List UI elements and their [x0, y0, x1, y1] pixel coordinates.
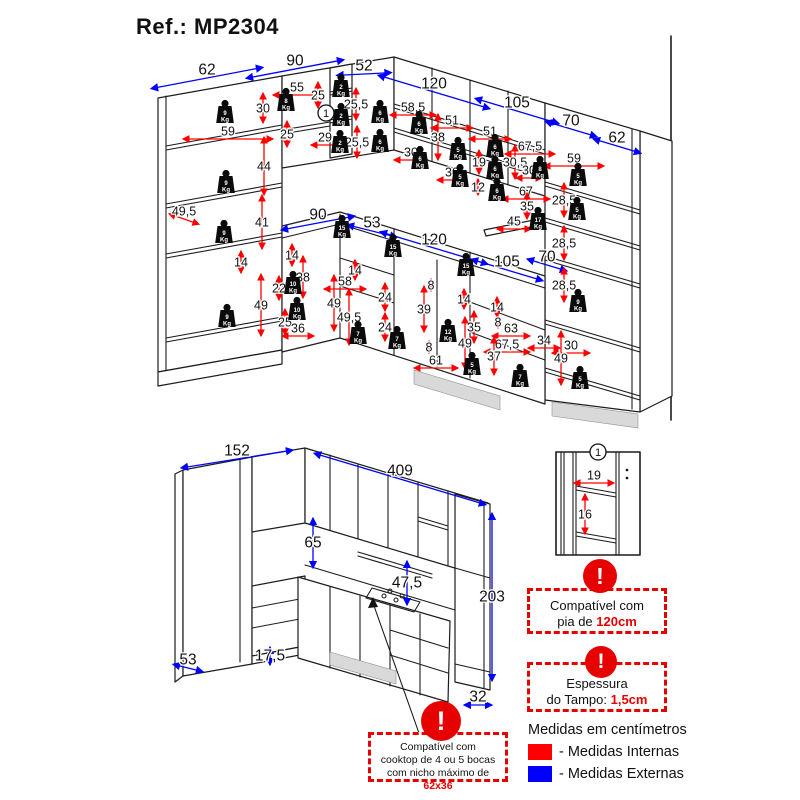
dimension-label: 49: [554, 352, 568, 366]
svg-text:Kg: Kg: [389, 252, 397, 258]
dimension-label: 90: [309, 207, 327, 224]
dimension-label: 67,5: [518, 140, 542, 154]
callout-marker: 1: [590, 444, 606, 460]
dimension-label: 25: [311, 89, 325, 103]
svg-text:Kg: Kg: [573, 215, 581, 221]
legend-heading: Medidas em centímetros: [528, 722, 687, 738]
dimension-label: 105: [504, 95, 530, 112]
dimension-label: 67: [519, 185, 533, 199]
dimension-label: 30: [256, 102, 270, 116]
svg-text:Kg: Kg: [338, 233, 346, 239]
warning-icon: !: [585, 646, 617, 678]
external-measures-swatch: [528, 766, 552, 782]
svg-text:Kg: Kg: [393, 344, 401, 350]
detail-callout-box: [556, 452, 640, 555]
dimension-label: 53: [363, 215, 380, 232]
dimension-label: 24: [378, 321, 392, 335]
svg-text:15: 15: [339, 226, 346, 232]
warning-icon: !: [421, 701, 461, 741]
svg-text:15: 15: [463, 264, 470, 270]
dimension-label: 19: [587, 469, 601, 483]
dimension-label: 37: [487, 350, 501, 364]
svg-text:Kg: Kg: [534, 225, 542, 231]
dimension-label: 19: [472, 156, 486, 170]
svg-text:Kg: Kg: [293, 315, 301, 321]
dimension-label: 62: [198, 62, 215, 79]
dimension-label: 39: [417, 303, 431, 317]
svg-text:Kg: Kg: [462, 271, 470, 277]
dimension-label: 12: [471, 181, 485, 195]
svg-text:10: 10: [290, 282, 297, 288]
dimension-label: 28,5: [552, 237, 576, 251]
callout-marker: 1: [318, 105, 334, 121]
dimension-label: 49: [327, 297, 341, 311]
legend-label-external: - Medidas Externas: [559, 766, 684, 782]
note-line: pia de 120cm: [530, 614, 664, 630]
top-exploded-view-linework: [158, 36, 672, 428]
dimension-label: 32: [469, 689, 486, 706]
note-line: Compatível com: [530, 598, 664, 614]
dimension-label: 36: [291, 322, 305, 336]
product-dimension-diagram: 629052120105706290531201057049,559304441…: [0, 0, 800, 800]
dimension-label: 38: [431, 131, 445, 145]
dimension-label: 63: [504, 322, 518, 336]
dimension-label: 152: [224, 443, 250, 460]
dimension-label: 65: [304, 535, 321, 552]
dimension-label: 47,5: [392, 575, 422, 592]
dimension-label: 16: [578, 508, 592, 522]
svg-text:Kg: Kg: [376, 118, 384, 124]
svg-text:15: 15: [390, 245, 397, 251]
svg-text:12: 12: [445, 330, 452, 336]
dimension-label: 8: [428, 279, 435, 293]
svg-text:Kg: Kg: [222, 188, 230, 194]
svg-text:Kg: Kg: [337, 121, 345, 127]
dimension-label: 409: [387, 463, 413, 480]
highlight-value: 120cm: [596, 614, 636, 629]
svg-text:Kg: Kg: [223, 322, 231, 328]
dimension-label: 61: [429, 354, 443, 368]
dimension-label: 120: [421, 76, 447, 93]
note-cooktop-compatibility: ! Compatível com cooktop de 4 ou 5 bocas…: [368, 732, 508, 782]
dimension-label: 14: [490, 301, 504, 315]
svg-text:Kg: Kg: [289, 289, 297, 295]
dimension-label: 90: [286, 53, 304, 70]
svg-text:Kg: Kg: [576, 384, 584, 390]
internal-measures-swatch: [528, 744, 552, 760]
dimension-label: 35: [520, 200, 534, 214]
note-line: cooktop de 4 ou 5 bocas: [371, 754, 505, 767]
legend-row-internal: - Medidas Internas: [528, 744, 687, 760]
dimension-label: 49: [458, 337, 472, 351]
svg-text:Kg: Kg: [220, 238, 228, 244]
svg-text:Kg: Kg: [516, 382, 524, 388]
dimension-label: 30: [564, 339, 578, 353]
highlight-value: 1,5cm: [611, 692, 648, 707]
svg-text:Kg: Kg: [456, 182, 464, 188]
dimension-label: 62: [608, 130, 625, 147]
dimension-label: 28,5: [552, 279, 576, 293]
svg-text:Kg: Kg: [536, 174, 544, 180]
dimension-label: 8: [495, 316, 502, 330]
dimension-label: 25,5: [345, 136, 369, 150]
svg-text:Kg: Kg: [336, 148, 344, 154]
dimension-label: 25: [280, 128, 294, 142]
svg-text:Kg: Kg: [574, 307, 582, 313]
svg-text:Kg: Kg: [337, 92, 345, 98]
dimension-label: 70: [538, 249, 556, 266]
dimension-label: 14: [234, 256, 248, 270]
diagram-canvas: 629052120105706290531201057049,559304441…: [0, 0, 800, 800]
dimension-label: 203: [479, 589, 505, 606]
page-title: Ref.: MP2304: [136, 14, 279, 40]
dimension-label: 45: [507, 215, 521, 229]
dimension-label: 59: [221, 125, 235, 139]
dimension-label: 35: [467, 321, 481, 335]
svg-text:1: 1: [595, 447, 601, 459]
dimension-label: 51: [445, 114, 459, 128]
note-line: Compatível com: [371, 741, 505, 754]
dimension-label: 34: [537, 334, 551, 348]
svg-text:Kg: Kg: [468, 370, 476, 376]
svg-text:Kg: Kg: [493, 196, 501, 202]
dimension-label: 14: [348, 264, 362, 278]
note-line: com nicho máximo de 62x36: [371, 767, 505, 793]
dimension-label: 14: [457, 293, 471, 307]
svg-text:17: 17: [535, 218, 542, 224]
svg-text:1: 1: [323, 108, 329, 120]
dimension-label: 44: [257, 160, 271, 174]
legend-row-external: - Medidas Externas: [528, 766, 687, 782]
note-line: Espessura: [530, 676, 664, 692]
dimension-label: 70: [562, 113, 580, 130]
dimension-label: 105: [494, 254, 520, 271]
highlight-value: 62x36: [423, 780, 452, 792]
dimension-label: 49: [254, 299, 268, 313]
dimension-label: 55: [290, 81, 304, 95]
dimension-label: 17,5: [255, 648, 285, 665]
dimension-label: 49,5: [172, 205, 196, 219]
svg-text:Kg: Kg: [444, 337, 452, 343]
svg-text:Kg: Kg: [354, 339, 362, 345]
dimension-label: 8: [426, 341, 433, 355]
dimension-label: 24: [378, 291, 392, 305]
note-line: do Tampo: 1,5cm: [530, 692, 664, 708]
svg-text:Kg: Kg: [454, 155, 462, 161]
svg-text:10: 10: [294, 308, 301, 314]
measures-legend: Medidas em centímetros - Medidas Interna…: [528, 722, 687, 788]
note-countertop-thickness: ! Espessura do Tampo: 1,5cm: [527, 662, 667, 712]
svg-text:Kg: Kg: [416, 164, 424, 170]
svg-text:Kg: Kg: [376, 147, 384, 153]
dimension-label: 120: [421, 232, 447, 249]
dimension-label: 41: [255, 216, 269, 230]
dimension-label: 52: [355, 58, 372, 75]
svg-text:Kg: Kg: [282, 106, 290, 112]
dimension-label: 29: [318, 131, 332, 145]
svg-text:Kg: Kg: [415, 129, 423, 135]
dimension-label: 14: [285, 249, 299, 263]
note-sink-compatibility: ! Compatível com pia de 120cm: [527, 588, 667, 634]
svg-text:Kg: Kg: [574, 181, 582, 187]
svg-text:Kg: Kg: [221, 118, 229, 124]
dimension-label: 53: [179, 652, 196, 669]
warning-icon: !: [583, 559, 617, 593]
legend-label-internal: - Medidas Internas: [559, 744, 679, 760]
dimension-label: 22: [272, 282, 286, 296]
